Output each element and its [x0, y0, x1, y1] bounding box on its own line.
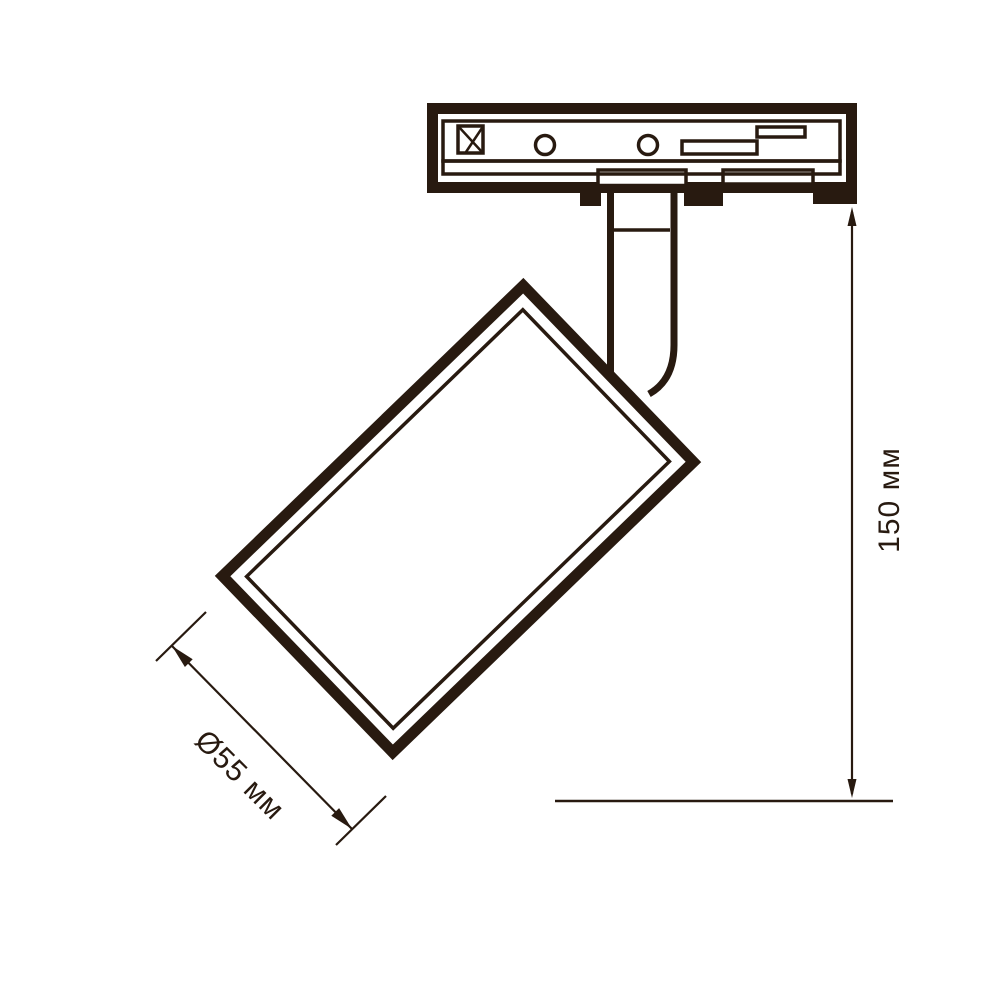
track-foot-left	[580, 185, 601, 206]
latch-plate	[723, 170, 813, 184]
stem	[611, 184, 675, 394]
track-foot-right	[813, 185, 857, 204]
height-dimension-label: 150 мм	[873, 447, 906, 553]
height-arrow-up	[848, 207, 857, 226]
height-arrow-down	[848, 779, 857, 798]
diameter-dimension-label: Ø55 мм	[188, 724, 291, 827]
stem-channel	[613, 186, 671, 374]
spotlight-dimension-drawing: 150 мм Ø55 мм	[0, 0, 1000, 1000]
drawing-canvas: 150 мм Ø55 мм	[0, 0, 1000, 1000]
track-foot-center	[684, 185, 723, 206]
track-adapter	[433, 109, 858, 207]
